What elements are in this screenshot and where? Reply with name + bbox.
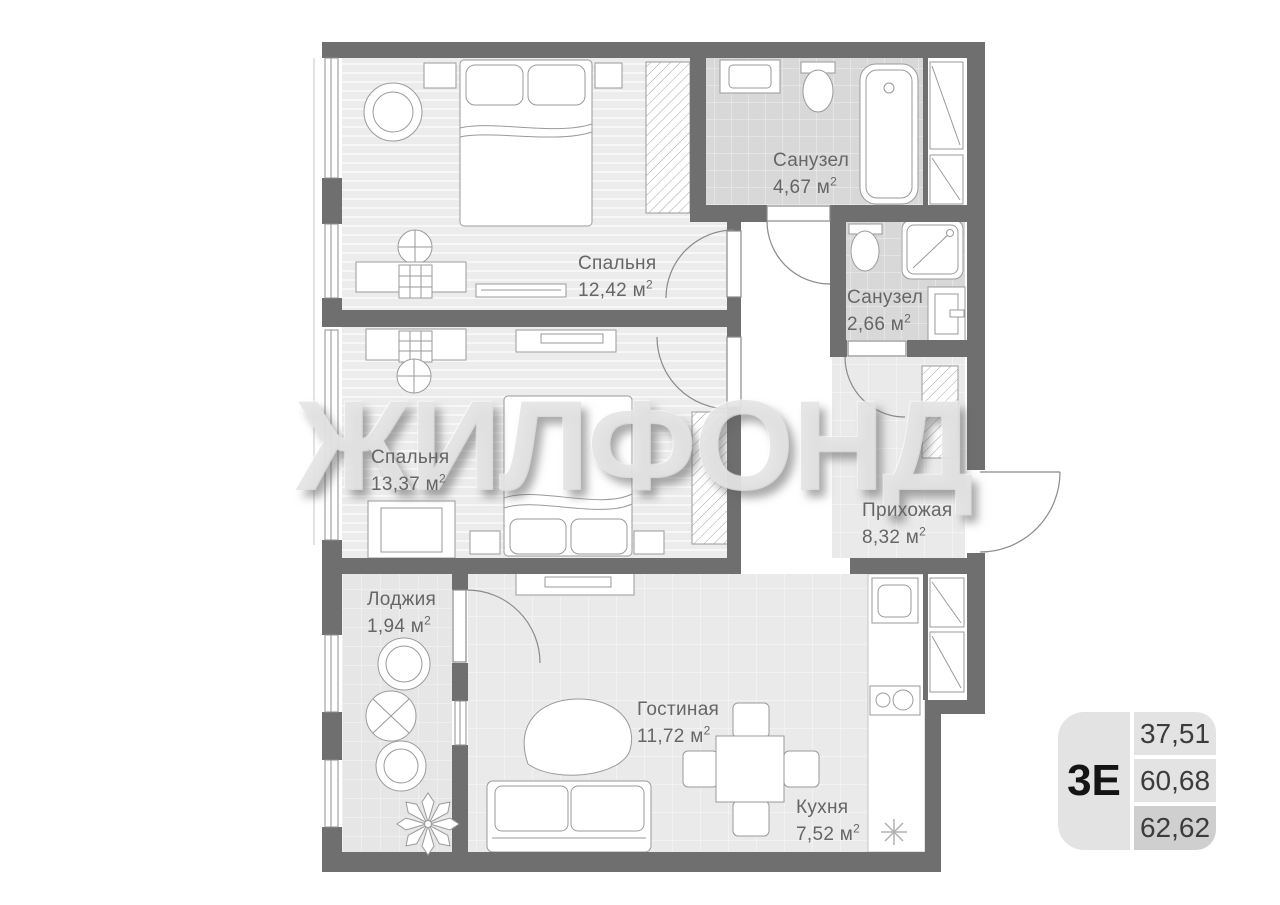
window-icon [325, 224, 338, 298]
room-name: Спальня [371, 444, 449, 471]
room-name: Санузел [847, 284, 923, 311]
room-name: Лоджия [367, 586, 436, 613]
sofa-icon [487, 781, 651, 852]
room-name: Гостиная [637, 696, 719, 723]
coffee-table-icon [524, 699, 631, 775]
nightstand-icon [634, 531, 664, 554]
room-label-bedroom1: Спальня 12,42 м2 [578, 250, 656, 304]
round-table-icon [366, 691, 416, 741]
area-value-total: 62,62 [1134, 806, 1216, 850]
room-label-living: Гостиная 11,72 м2 [637, 696, 719, 750]
wardrobe-icon [646, 62, 690, 213]
area-value-apartment: 60,68 [1134, 759, 1216, 802]
room-label-bedroom2: Спальня 13,37 м2 [371, 444, 449, 498]
room-label-bathroom1: Санузел 4,67 м2 [773, 147, 849, 201]
washing-machine-icon [928, 287, 965, 341]
vent-shaft-icon [930, 578, 964, 627]
nightstand-icon [424, 63, 456, 88]
stove-icon [870, 686, 920, 715]
double-bed-icon [460, 60, 592, 226]
tv-stand-icon [516, 572, 634, 595]
room-area: 1,94 м2 [367, 613, 436, 640]
room-area: 11,72 м2 [637, 723, 719, 750]
apartment-info-box: 3Е 37,51 60,68 62,62 [1058, 712, 1216, 850]
shower-icon [902, 220, 963, 279]
nightstand-icon [470, 531, 500, 554]
room-label-hallway: Прихожая 8,32 м2 [862, 497, 952, 551]
room-area: 7,52 м2 [796, 821, 860, 848]
tv-stand-icon [516, 330, 616, 352]
floor-plan-page: ЖИЛФОНД Спальня 12,42 м2 Санузел 4,67 м2… [0, 0, 1280, 905]
area-value-living: 37,51 [1134, 712, 1216, 755]
room-name: Кухня [796, 794, 860, 821]
entry-door-icon [980, 472, 1060, 552]
room-label-bathroom2: Санузел 2,66 м2 [847, 284, 923, 338]
window-icon [325, 58, 338, 178]
room-area: 2,66 м2 [847, 311, 923, 338]
room-name: Санузел [773, 147, 849, 174]
window-icon [325, 760, 338, 827]
room-label-loggia: Лоджия 1,94 м2 [367, 586, 436, 640]
sink-icon [720, 60, 780, 93]
vent-shaft-icon [930, 62, 963, 149]
room-area: 4,67 м2 [773, 174, 849, 201]
window-icon [325, 635, 338, 712]
room-name: Прихожая [862, 497, 952, 524]
room-area: 8,32 м2 [862, 524, 952, 551]
room-area: 12,42 м2 [578, 277, 656, 304]
room-label-kitchen: Кухня 7,52 м2 [796, 794, 860, 848]
vent-shaft-icon [930, 632, 964, 692]
room-area: 13,37 м2 [371, 471, 449, 498]
kitchen-sink-icon [872, 578, 918, 623]
window-icon [455, 701, 466, 745]
room-name: Спальня [578, 250, 656, 277]
bench-icon [476, 284, 566, 297]
apartment-type-badge: 3Е [1058, 712, 1130, 850]
plant-icon [397, 793, 459, 855]
toilet-icon [801, 62, 835, 112]
bathtub-icon [860, 64, 918, 204]
vent-shaft-icon [930, 155, 963, 204]
nightstand-icon [595, 63, 622, 88]
